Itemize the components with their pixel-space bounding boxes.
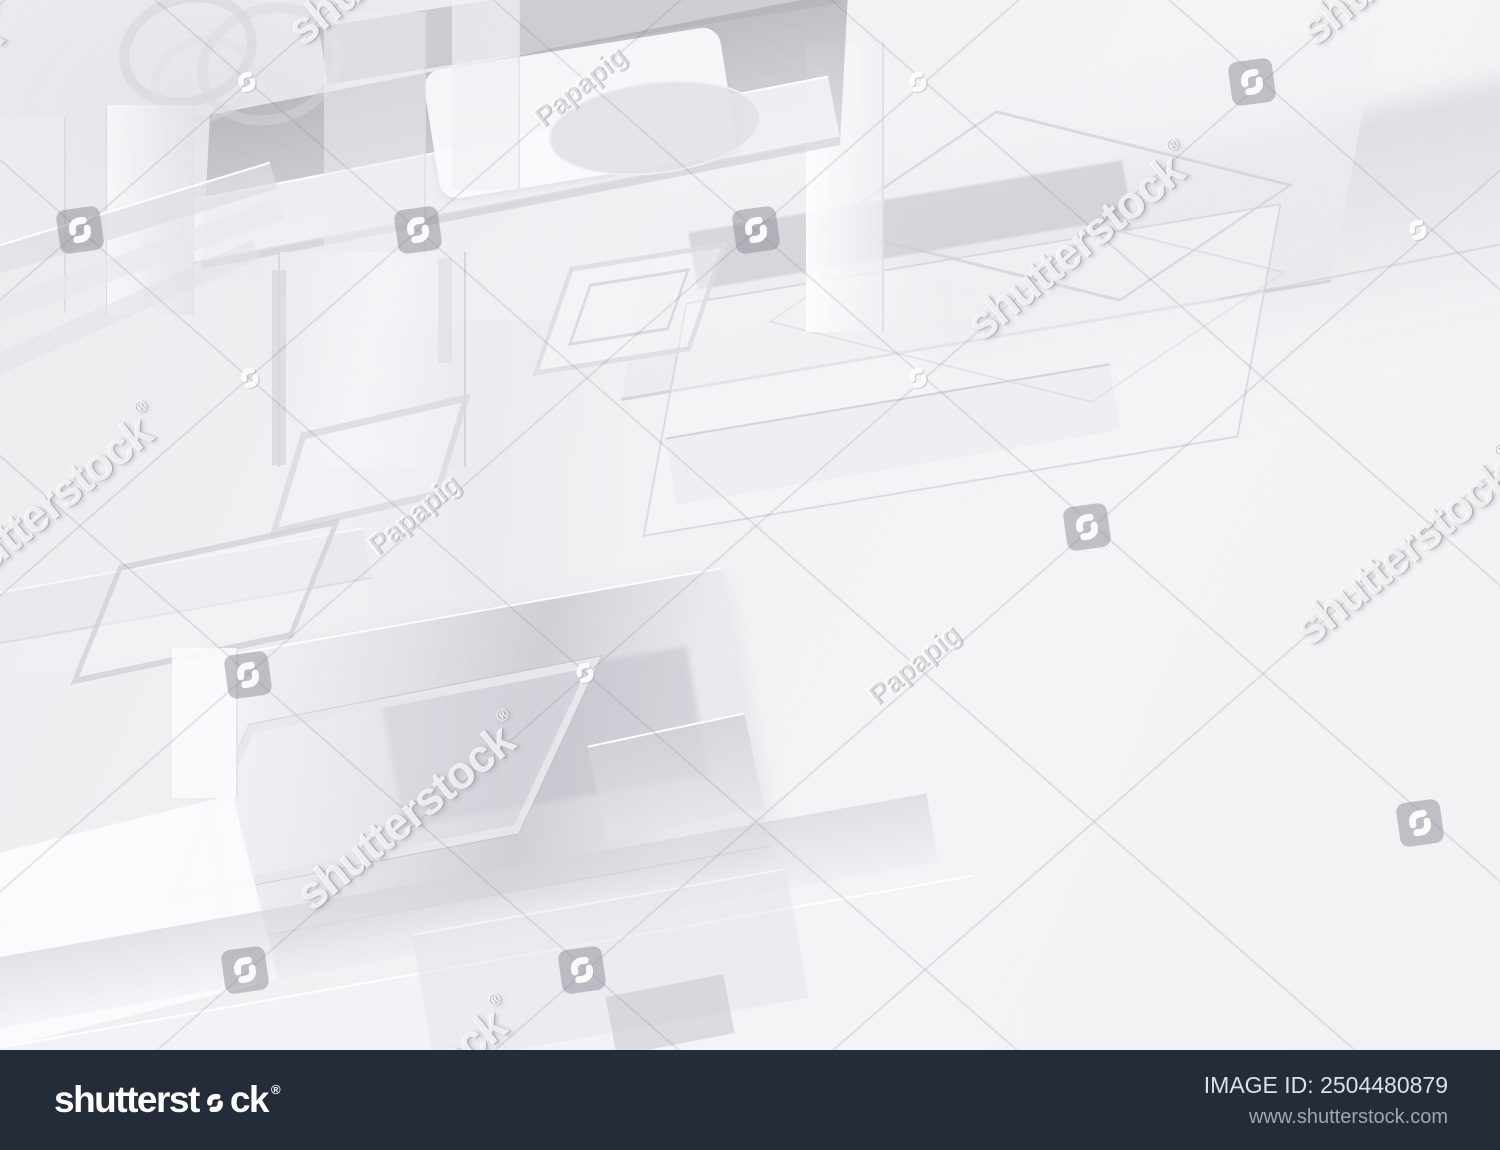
shutterstock-watermark-text: shutterstock® <box>0 879 13 1050</box>
shutterstock-s-icon <box>899 359 937 397</box>
shutterstock-s-icon <box>731 205 781 255</box>
registered-mark: ® <box>484 989 505 1011</box>
watermark-net-line <box>0 0 1247 1050</box>
registered-mark: ® <box>271 1082 281 1097</box>
shutterstock-s-icon <box>228 63 266 101</box>
watermark-net-line <box>0 0 1500 1050</box>
watermark-net-line <box>0 0 1500 1050</box>
watermark-net-line <box>0 0 1500 1050</box>
shutterstock-s-icon <box>566 654 604 692</box>
registered-mark: ® <box>130 396 151 418</box>
shutterstock-watermark-text: shutterstock® <box>1283 439 1500 656</box>
watermark-net-line <box>0 0 1500 1050</box>
registered-mark: ® <box>492 704 513 726</box>
shutterstock-o-icon <box>201 1089 229 1117</box>
watermark-net-line <box>265 0 1500 1050</box>
contributor-watermark-text: Papapig <box>362 468 467 561</box>
footer-bar: shutterst ck ® IMAGE ID: 2504480879 www.… <box>0 1050 1500 1150</box>
shutterstock-s-icon <box>55 205 105 255</box>
stock-photo-page: shutterstock®shutterstock®shutterstock®s… <box>0 0 1500 1150</box>
watermark-net-line <box>0 0 1500 1050</box>
image-id-label: IMAGE ID: 2504480879 <box>1204 1072 1448 1099</box>
watermark-net-line <box>0 0 1500 1050</box>
shutterstock-watermark-text: shutterstock® <box>0 396 173 613</box>
contributor-watermark-text: Papapig <box>528 40 633 133</box>
abstract-3d-glass-image: shutterstock®shutterstock®shutterstock®s… <box>0 0 1500 1050</box>
shutterstock-s-icon <box>231 359 269 397</box>
logo-text-left: shutterst <box>54 1079 199 1121</box>
registered-mark: ® <box>1162 134 1183 156</box>
logo-text-right: ck <box>230 1079 268 1121</box>
watermark-net-line <box>265 0 1500 1050</box>
watermark-net-line <box>0 0 1500 1050</box>
watermark-net-line <box>0 0 1500 1050</box>
shutterstock-watermark-text: shutterstock® <box>0 0 23 216</box>
watermark-net-line <box>0 0 1500 1050</box>
shutterstock-logo: shutterst ck ® <box>54 1079 281 1121</box>
shutterstock-watermark-text: shutterstock® <box>1288 0 1500 56</box>
shutterstock-s-icon <box>393 205 443 255</box>
shutterstock-s-icon <box>220 945 270 995</box>
shutterstock-watermark-text: shutterstock® <box>277 989 527 1050</box>
shutterstock-s-icon <box>1399 211 1437 249</box>
watermark-net-line <box>0 0 1247 1050</box>
shutterstock-watermark-text: shutterstock® <box>955 134 1205 351</box>
shutterstock-s-icon <box>1395 798 1445 848</box>
shutterstock-watermark-text: shutterstock® <box>276 0 526 56</box>
watermark-layer: shutterstock®shutterstock®shutterstock®s… <box>0 0 1500 1050</box>
shutterstock-s-icon <box>899 63 937 101</box>
watermark-net-line <box>0 0 1500 1050</box>
shutterstock-s-icon <box>223 650 273 700</box>
registered-mark: ® <box>1490 439 1500 461</box>
shutterstock-s-icon <box>1062 502 1112 552</box>
shutterstock-s-icon <box>1227 57 1277 107</box>
website-url: www.shutterstock.com <box>1249 1106 1448 1129</box>
shutterstock-s-icon <box>557 945 607 995</box>
